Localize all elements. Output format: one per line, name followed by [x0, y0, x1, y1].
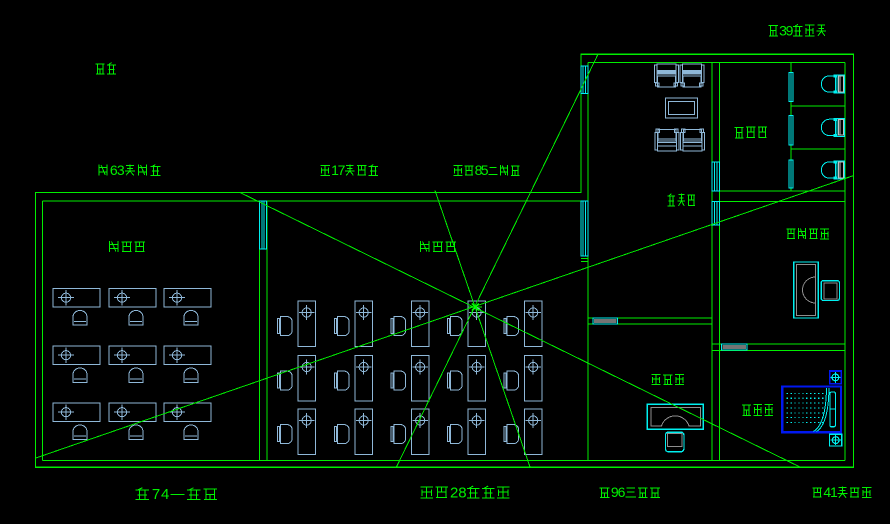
- svg-text:6: 6: [618, 484, 626, 500]
- svg-text:7: 7: [152, 486, 160, 503]
- svg-text:4: 4: [161, 486, 169, 503]
- svg-text:9: 9: [786, 22, 794, 38]
- svg-text:2: 2: [450, 485, 458, 502]
- svg-text:8: 8: [458, 485, 466, 502]
- svg-text:3: 3: [117, 162, 125, 178]
- svg-text:5: 5: [481, 162, 489, 178]
- svg-text:1: 1: [830, 484, 838, 500]
- svg-text:7: 7: [338, 162, 346, 178]
